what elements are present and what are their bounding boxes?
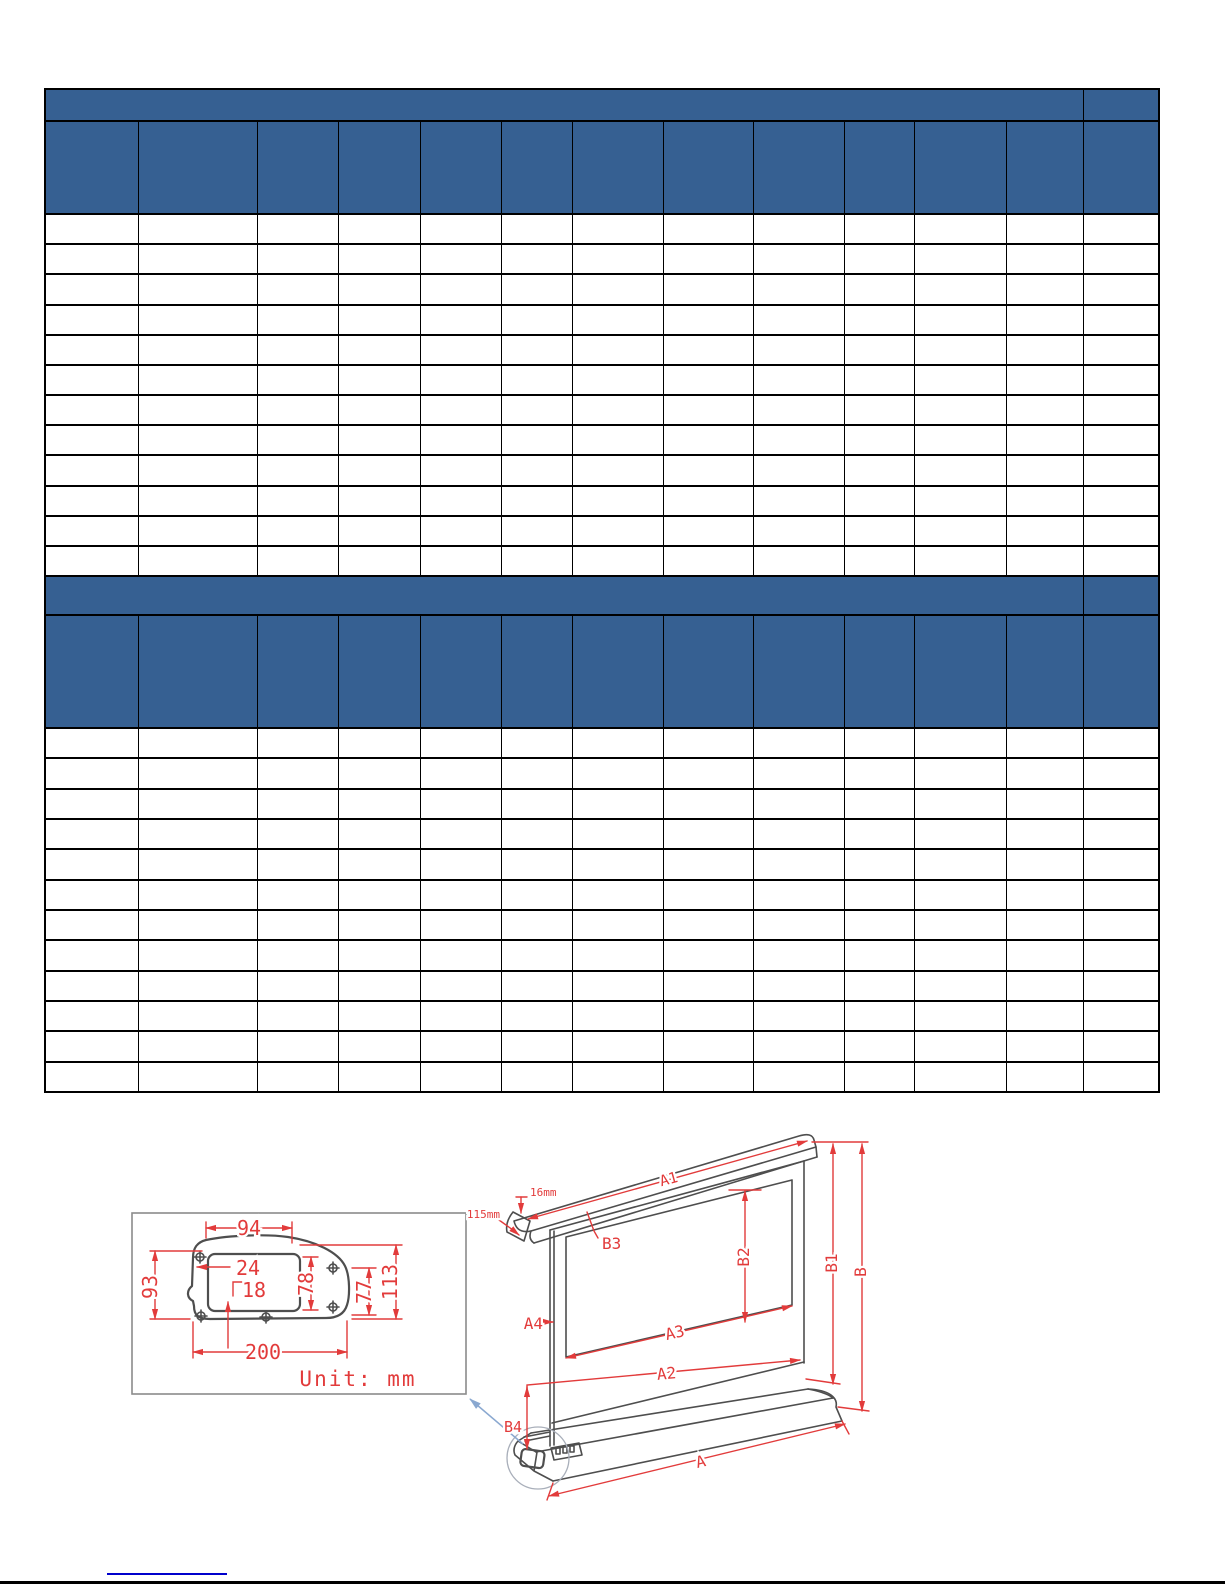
table-cell [339,1032,421,1060]
table-cell [915,336,1007,364]
table-cell [139,729,258,757]
table-cell [573,306,664,334]
table-cell [573,517,664,545]
dim-78-label: 78 [294,1272,318,1296]
header-cell [139,122,258,213]
table-cell [502,456,573,484]
table-cell [1084,396,1158,424]
table-cell [845,487,915,515]
table-cell [46,729,139,757]
table-cell [46,245,139,273]
table-cell [502,820,573,848]
label-b: B [851,1267,870,1277]
table-cell [845,456,915,484]
table-cell [46,820,139,848]
table-cell [845,1063,915,1091]
header-cell [46,616,139,727]
unit-note: Unit: mm [299,1367,416,1391]
table-cell [754,275,845,303]
header-cell [1084,616,1158,727]
table-cell [754,487,845,515]
table-cell [502,729,573,757]
table-cell [915,245,1007,273]
table-cell [46,366,139,394]
table-cell [421,336,502,364]
header-cell [664,616,754,727]
header-cell [46,122,139,213]
dim-93-label: 93 [138,1275,162,1299]
table-cell [139,820,258,848]
table-cell [664,336,754,364]
label-a3: A3 [663,1321,686,1344]
table-cell [339,790,421,818]
table-cell [1007,245,1084,273]
table-cell [754,1002,845,1030]
table-cell [421,759,502,787]
table-cell [339,306,421,334]
header-cell [845,122,915,213]
table-cell [421,972,502,1000]
band-merged-cell [46,90,1084,120]
table-cell [421,881,502,909]
table-band-row [46,577,1158,616]
table-cell [339,729,421,757]
table-cell [421,366,502,394]
table-cell [139,517,258,545]
table-cell [845,1002,915,1030]
table-cell [1084,215,1158,243]
table-cell [46,790,139,818]
label-a: A [694,1451,708,1472]
table-cell [258,1032,339,1060]
table-cell [664,881,754,909]
table-cell [915,1063,1007,1091]
table-cell [845,366,915,394]
spec-table-2 [44,577,1160,1093]
table-cell [46,759,139,787]
table-cell [139,456,258,484]
dimension-diagram: 94 24 18 200 93 78 77 113 Unit: mm [0,1100,1225,1570]
table-cell [502,1002,573,1030]
table-cell [1007,850,1084,878]
table-cell [339,366,421,394]
table-cell [664,1002,754,1030]
footer-link-underline[interactable] [107,1573,227,1575]
table-cell [421,396,502,424]
table-cell [573,759,664,787]
table-cell [754,306,845,334]
table-cell [754,456,845,484]
table-cell [1007,820,1084,848]
label-b3: B3 [602,1234,621,1253]
band-merged-cell [46,577,1084,614]
table-cell [1007,456,1084,484]
table-cell [258,1063,339,1091]
table-cell [573,245,664,273]
table-cell [139,1002,258,1030]
table-row [46,911,1158,941]
table-cell [46,881,139,909]
header-cell [915,122,1007,213]
header-cell [502,122,573,213]
table-cell [139,759,258,787]
table-cell [1007,336,1084,364]
table-cell [139,396,258,424]
table-cell [1007,396,1084,424]
table-cell [664,1063,754,1091]
table-cell [754,426,845,454]
table-cell [915,759,1007,787]
table-row [46,1002,1158,1032]
dim-113-label: 113 [378,1264,402,1300]
table-cell [421,275,502,303]
table-cell [1084,1002,1158,1030]
table-cell [1084,729,1158,757]
table-cell [664,245,754,273]
table-cell [1007,941,1084,969]
document-page: 94 24 18 200 93 78 77 113 Unit: mm [0,0,1225,1585]
table-cell [339,911,421,939]
table-cell [754,1032,845,1060]
header-cell [258,616,339,727]
table-row [46,487,1158,517]
table-cell [664,759,754,787]
table-cell [1084,336,1158,364]
table-cell [754,820,845,848]
label-b2: B2 [734,1247,753,1266]
table-cell [421,215,502,243]
table-cell [339,517,421,545]
table-cell [915,790,1007,818]
table-cell [258,850,339,878]
table-cell [502,487,573,515]
table-cell [339,426,421,454]
table-cell [1084,881,1158,909]
table-cell [664,215,754,243]
bar-end-piece [507,1212,530,1241]
table-cell [573,215,664,243]
table-cell [845,426,915,454]
table-cell [573,456,664,484]
dim-94-label: 94 [237,1216,261,1240]
table-cell [502,396,573,424]
table-cell [1084,850,1158,878]
table-cell [754,881,845,909]
table-cell [573,729,664,757]
label-a1: A1 [658,1168,680,1190]
table-cell [664,911,754,939]
table-row [46,881,1158,911]
table-cell [1084,941,1158,969]
table-cell [258,487,339,515]
table-cell [1007,517,1084,545]
table-cell [339,336,421,364]
table-cell [46,850,139,878]
table-row [46,456,1158,486]
table-cell [139,426,258,454]
table-cell [754,911,845,939]
table-cell [258,790,339,818]
table-cell [573,547,664,575]
table-cell [258,366,339,394]
table-cell [139,790,258,818]
table-cell [664,1032,754,1060]
table-cell [573,366,664,394]
header-cell [502,616,573,727]
table-cell [845,911,915,939]
table-cell [664,487,754,515]
table-cell [915,547,1007,575]
table-cell [845,850,915,878]
table-cell [915,972,1007,1000]
table-cell [754,366,845,394]
table-cell [915,881,1007,909]
label-a4: A4 [524,1314,543,1333]
table-cell [46,426,139,454]
dim-77-label: 77 [352,1280,376,1304]
table-cell [502,517,573,545]
endcap-detail-box: 94 24 18 200 93 78 77 113 Unit: mm [132,1213,466,1394]
table-cell [258,820,339,848]
table-cell [258,881,339,909]
table-row [46,366,1158,396]
header-cell [915,616,1007,727]
header-cell [1007,616,1084,727]
table-cell [1007,487,1084,515]
table-cell [502,275,573,303]
table-cell [258,972,339,1000]
table-cell [421,911,502,939]
table-row [46,972,1158,1002]
table-cell [258,396,339,424]
table-cell [139,215,258,243]
table-cell [573,820,664,848]
table-cell [421,547,502,575]
table-cell [421,820,502,848]
band-corner-cell [1084,90,1158,120]
table-cell [258,275,339,303]
table-cell [258,729,339,757]
table-cell [339,820,421,848]
table-cell [1084,366,1158,394]
table-cell [258,336,339,364]
table-cell [845,820,915,848]
table-cell [502,911,573,939]
table-cell [46,1063,139,1091]
table-cell [139,487,258,515]
table-cell [573,941,664,969]
table-cell [754,245,845,273]
label-b4: B4 [504,1418,522,1436]
table-row [46,306,1158,336]
table-cell [258,911,339,939]
table-cell [664,972,754,1000]
table-cell [754,850,845,878]
table-cell [1007,366,1084,394]
table-cell [46,306,139,334]
table-cell [915,426,1007,454]
table-cell [573,911,664,939]
table-cell [258,759,339,787]
table-cell [664,547,754,575]
header-cell [754,122,845,213]
table-cell [845,245,915,273]
header-cell [573,122,664,213]
table-cell [915,1002,1007,1030]
table-row [46,850,1158,880]
table-cell [339,547,421,575]
header-cell [339,122,421,213]
table-cell [502,881,573,909]
table-cell [339,850,421,878]
table-cell [1007,972,1084,1000]
label-115mm: 115mm [467,1208,500,1221]
table-cell [845,336,915,364]
table-cell [139,941,258,969]
table-cell [502,759,573,787]
table-cell [845,275,915,303]
table-cell [421,1063,502,1091]
table-cell [1007,790,1084,818]
table-cell [1084,275,1158,303]
table-cell [915,941,1007,969]
table-row [46,245,1158,275]
table-cell [139,245,258,273]
table-cell [915,487,1007,515]
table-cell [573,396,664,424]
table-cell [258,547,339,575]
table-cell [915,366,1007,394]
table-cell [1084,1032,1158,1060]
table-cell [915,396,1007,424]
table-cell [915,215,1007,243]
table-cell [754,759,845,787]
table-cell [139,911,258,939]
table-row [46,1032,1158,1062]
table-cell [573,336,664,364]
table-row [46,396,1158,426]
table-cell [139,1063,258,1091]
table-cell [502,1032,573,1060]
table-cell [258,517,339,545]
table-cell [139,850,258,878]
table-cell [258,941,339,969]
table-cell [339,275,421,303]
table-row [46,215,1158,245]
table-cell [421,941,502,969]
table-cell [421,729,502,757]
table-cell [339,487,421,515]
table-cell [139,881,258,909]
table-cell [754,1063,845,1091]
table-cell [339,396,421,424]
table-row [46,426,1158,456]
table-cell [915,456,1007,484]
table-cell [502,1063,573,1091]
table-cell [421,306,502,334]
dim-18-label: 18 [242,1278,266,1302]
table-cell [845,941,915,969]
table-cell [573,850,664,878]
table-cell [502,245,573,273]
table-cell [845,759,915,787]
table-cell [754,517,845,545]
table-cell [339,245,421,273]
table-cell [1007,1002,1084,1030]
table-cell [754,729,845,757]
table-cell [1007,426,1084,454]
table-cell [1084,790,1158,818]
table-cell [502,336,573,364]
band-corner-cell [1084,577,1158,614]
table-cell [502,215,573,243]
table-row [46,759,1158,789]
table-cell [1084,1063,1158,1091]
table-cell [1084,487,1158,515]
table-cell [845,306,915,334]
table-cell [258,306,339,334]
table-cell [421,426,502,454]
table-cell [1007,215,1084,243]
table-cell [339,759,421,787]
table-cell [139,1032,258,1060]
table-cell [46,215,139,243]
table-cell [1007,1032,1084,1060]
label-a2: A2 [656,1363,677,1384]
table-cell [1084,911,1158,939]
table-cell [339,941,421,969]
table-cell [339,1063,421,1091]
table-row [46,517,1158,547]
table-cell [573,1032,664,1060]
table-cell [258,426,339,454]
table-cell [664,306,754,334]
page-bottom-rule [0,1581,1225,1584]
table-cell [754,941,845,969]
spec-table-1 [44,88,1160,577]
table-cell [421,517,502,545]
dim-24-label: 24 [236,1256,260,1280]
table-cell [46,517,139,545]
table-cell [1084,547,1158,575]
table-cell [845,517,915,545]
header-cell [258,122,339,213]
table-cell [46,547,139,575]
header-cell [664,122,754,213]
table-cell [573,881,664,909]
table-cell [139,275,258,303]
table-cell [754,396,845,424]
header-cell [421,122,502,213]
table-cell [573,275,664,303]
table-cell [46,487,139,515]
table-cell [502,790,573,818]
header-cell [1007,122,1084,213]
base-endcap-socket [520,1449,545,1469]
table-cell [845,972,915,1000]
label-16mm: 16mm [530,1186,557,1199]
table-cell [845,396,915,424]
table-cell [339,456,421,484]
label-b1: B1 [822,1253,841,1272]
table-cell [1084,426,1158,454]
table-cell [1084,456,1158,484]
table-cell [339,1002,421,1030]
table-row [46,941,1158,971]
table-cell [845,547,915,575]
table-cell [754,972,845,1000]
table-cell [421,456,502,484]
